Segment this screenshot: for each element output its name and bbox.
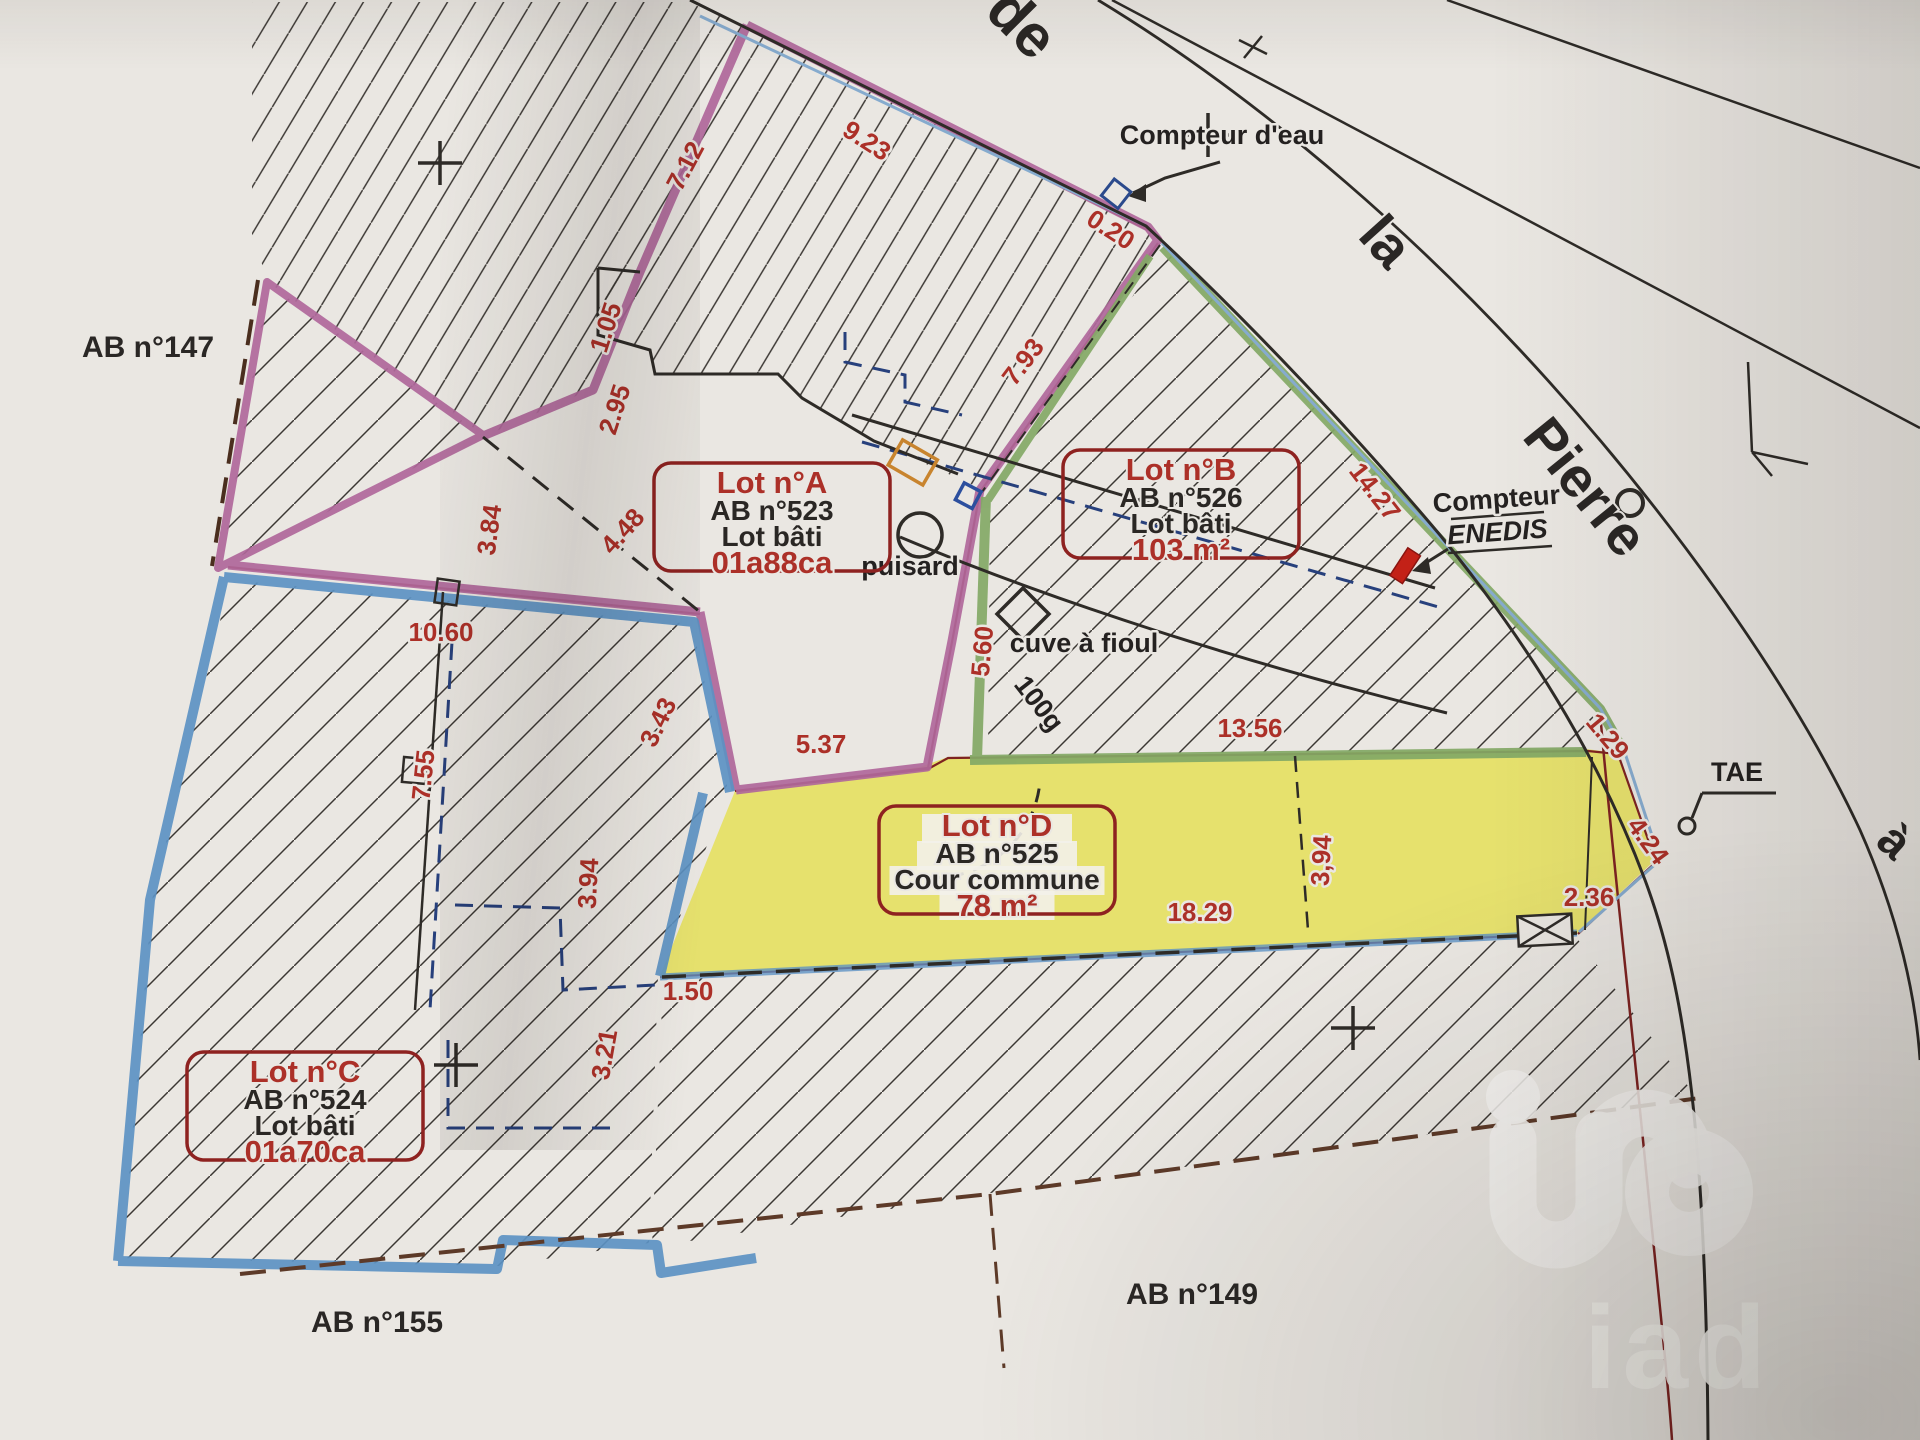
measurement-label: 13.56 [1217,713,1282,743]
cuve-fioul-label: cuve à fioul [1010,628,1159,658]
utility-label-tae: TAE [1711,757,1763,787]
tae-label: TAE [1711,757,1763,787]
cadastral-plan-drawing: delaPierreà AB n°147AB n°155AB n°149 7.1… [0,0,1920,1440]
parcel-label: AB n°147 [82,331,214,364]
fork-boundary-detail [1748,362,1808,476]
measurement-label: 1.50 [663,976,714,1006]
lot-area: 01a88ca [712,545,833,580]
logo-dot [1486,1070,1540,1124]
leader-compteur-eau [1133,162,1220,193]
lot-area: 78 m² [957,888,1038,923]
x-tick [1239,36,1267,58]
measurement-label: 5.37 [796,729,847,759]
logo-o-ring [1647,1150,1731,1234]
measurement-label: 10.60 [408,617,473,647]
lot-area: 01a70ca [245,1134,366,1169]
street-word: la [1347,203,1426,280]
measurement-label: 3,94 [1305,834,1338,887]
measurement-label: 2.36 [1564,882,1615,912]
puisard-label: puisard [861,551,959,581]
utility-label-puisard: puisard [861,551,959,581]
utility-label-cuve-fioul: cuve à fioul [1010,628,1159,658]
measurement-label: 4.48 [594,502,650,560]
measurement-label: 5.60 [965,625,999,678]
compteur-enedis-label2: ENEDIS [1446,513,1548,550]
hatch-lotC-building [122,580,728,1266]
street-word: de [974,0,1071,72]
lot-box-A: Lot n°AAB n°523Lot bâti01a88ca [654,463,890,580]
measurement-label: 18.29 [1167,897,1232,927]
measurement-label: 2.95 [592,381,636,438]
measurement-label: 3.84 [471,502,508,557]
lot-area: 103 m² [1132,532,1230,567]
tae-point [1679,818,1695,834]
scanned-plan-page: delaPierreà AB n°147AB n°155AB n°149 7.1… [0,0,1920,1440]
measurement-label: 7.55 [405,748,440,801]
crossed-box-marker [1517,914,1572,947]
compteur-eau-label: Compteur d'eau [1120,120,1324,150]
leader-tae [1692,793,1776,818]
parcel-label: AB n°155 [311,1306,443,1339]
utility-label-compteur-eau: Compteur d'eau [1120,120,1324,150]
logo-text: iad [1584,1282,1773,1414]
hatch-parcel-149-strip [652,937,1697,1247]
parcel-label: AB n°149 [1126,1278,1258,1311]
measurement-label: 3.94 [572,857,605,910]
